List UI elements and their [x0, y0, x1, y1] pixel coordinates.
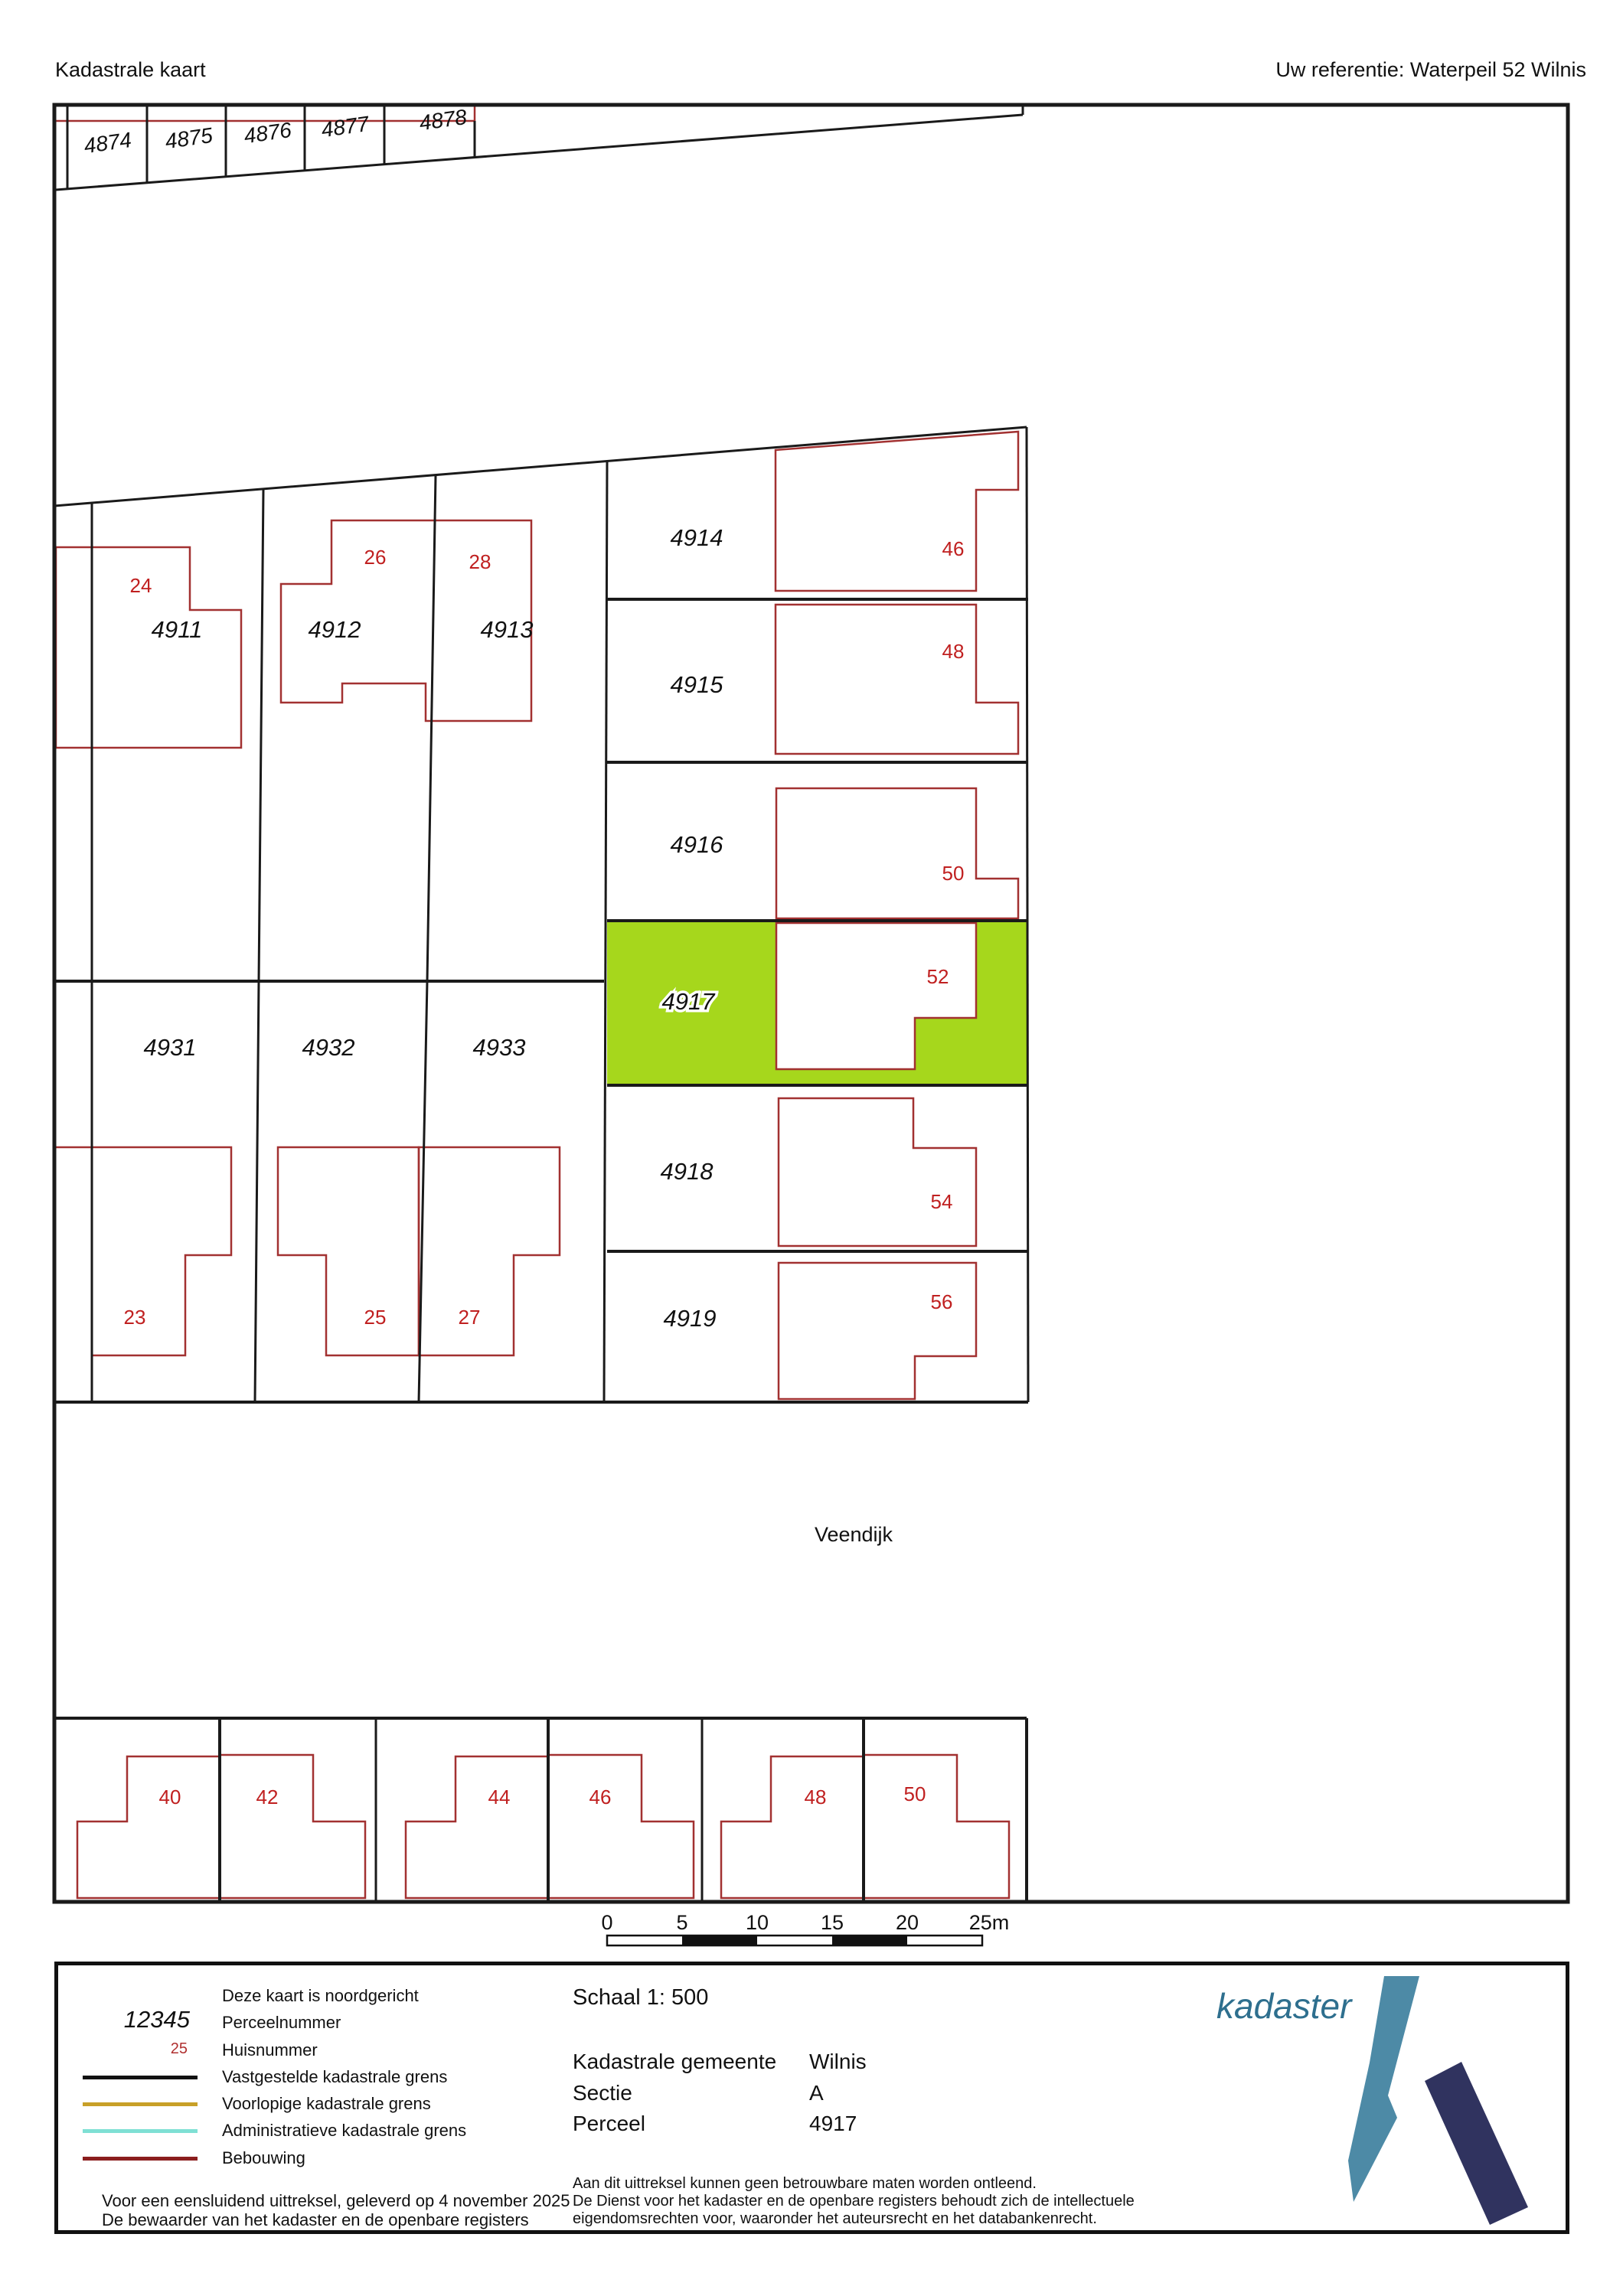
street-label: Veendijk [815, 1523, 893, 1546]
building-46 [776, 432, 1018, 591]
parcel-label: 4911 [152, 616, 203, 643]
kadaster-logo-text: kadaster [1216, 1986, 1353, 2026]
house-number: 44 [488, 1786, 511, 1808]
parcel-label: 4878 [418, 105, 469, 135]
building-40 [77, 1756, 220, 1898]
cadastral-extract-page: Kadastrale kaart Uw referentie: Waterpei… [0, 0, 1623, 2296]
parcel-number-legend-label: Perceelnummer [222, 2013, 341, 2033]
top-parcel-labels: 4874 4875 4876 4877 4878 [83, 105, 469, 158]
parcel-label: 4916 [671, 831, 724, 858]
provisional-boundary-label: Voorlopige kadastrale grens [222, 2094, 431, 2114]
building-50b [864, 1755, 1009, 1898]
house-number: 23 [124, 1306, 146, 1329]
house-number: 42 [256, 1786, 279, 1808]
scale-tick: 5 [676, 1911, 687, 1934]
building-54 [779, 1098, 976, 1246]
administrative-boundary-label: Administratieve kadastrale grens [222, 2121, 466, 2141]
parcel-number-sample: 12345 [104, 2006, 190, 2033]
scale-tick: 25m [969, 1911, 1010, 1934]
parcel-label: 4876 [243, 118, 293, 148]
building-legend-label: Bebouwing [222, 2148, 305, 2168]
house-number-sample: 25 [104, 2040, 188, 2058]
established-boundary-line-sample [83, 2076, 198, 2079]
parcel-label: 4915 [671, 671, 724, 698]
house-number: 46 [589, 1786, 612, 1808]
map-frame [54, 105, 1568, 1902]
house-number: 27 [459, 1306, 481, 1329]
parcel-label: 4914 [671, 524, 723, 551]
kadaster-logo-bar [1425, 2062, 1528, 2225]
scale-bar: 0 5 10 15 20 25m [601, 1911, 1009, 1945]
house-number: 28 [469, 550, 491, 573]
north-note: Deze kaart is noordgericht [222, 1986, 419, 2006]
house-number: 48 [942, 640, 965, 663]
parcel-label: 4875 [164, 123, 214, 153]
house-number: 54 [931, 1190, 953, 1213]
building-42 [220, 1755, 365, 1898]
parcel-boundaries [54, 105, 1028, 1902]
house-number: 25 [364, 1306, 387, 1329]
house-number: 50 [904, 1782, 926, 1805]
parcel-label: 4931 [144, 1034, 197, 1061]
section-label: Sectie [573, 2081, 632, 2105]
house-number: 26 [364, 546, 387, 569]
legend-box: Deze kaart is noordgericht 12345 Perceel… [54, 1962, 1569, 2234]
house-number: 24 [130, 574, 152, 597]
building-50 [776, 788, 1018, 918]
disclaimer-line: Aan dit uittreksel kunnen geen betrouwba… [573, 2175, 1037, 2193]
disclaimer-line: De Dienst voor het kadaster en de openba… [573, 2193, 1135, 2210]
scale-tick: 0 [601, 1911, 612, 1934]
disclaimer-line: eigendomsrechten voor, waaronder het aut… [573, 2210, 1097, 2228]
building-outlines [54, 105, 1018, 1898]
house-number: 40 [159, 1786, 181, 1808]
highlighted-parcel-label: 4917 [662, 988, 717, 1015]
building-48b [721, 1756, 864, 1898]
building-46b [548, 1755, 694, 1898]
kadaster-logo: kadaster [1192, 1975, 1552, 2231]
building-27 [419, 1147, 560, 1355]
scale-tick: 10 [746, 1911, 769, 1934]
house-number-legend-label: Huisnummer [222, 2040, 318, 2060]
scale-tick: 15 [821, 1911, 844, 1934]
scale-text: Schaal 1: 500 [573, 1985, 708, 2011]
house-number: 56 [931, 1290, 953, 1313]
cadastral-map: 4874 4875 4876 4877 4878 4911 4912 4913 … [0, 0, 1623, 2296]
issuance-note: Voor een eensluidend uittreksel, gelever… [102, 2191, 570, 2210]
parcel-label: 4877 [320, 112, 371, 142]
parcel-label: 4912 [309, 616, 361, 643]
building-56 [779, 1263, 976, 1399]
parcel-label: 4913 [481, 616, 534, 643]
kadaster-logo-blade [1348, 1976, 1419, 2202]
municipality-label: Kadastrale gemeente [573, 2050, 776, 2074]
building-44 [406, 1756, 548, 1898]
parcel-label: 4933 [473, 1034, 526, 1061]
administrative-boundary-line-sample [83, 2129, 198, 2133]
provisional-boundary-line-sample [83, 2102, 198, 2106]
section-value: A [809, 2081, 824, 2105]
parcel-label-row: Perceel [573, 2112, 645, 2136]
parcel-label: 4874 [83, 128, 133, 158]
building-48 [776, 605, 1018, 754]
building-line-sample [83, 2157, 198, 2161]
house-number: 48 [805, 1786, 827, 1808]
parcel-value: 4917 [809, 2112, 857, 2136]
parcel-row-lines [54, 599, 1028, 1902]
house-number-labels: 24 26 28 46 48 50 52 54 56 23 25 27 40 4… [124, 537, 965, 1808]
parcel-label: 4918 [661, 1158, 714, 1185]
municipality-value: Wilnis [809, 2050, 867, 2074]
house-number: 50 [942, 862, 965, 885]
parcel-label: 4919 [664, 1305, 717, 1332]
registrar-note: De bewaarder van het kadaster en de open… [102, 2210, 529, 2229]
house-number: 46 [942, 537, 965, 560]
building-25 [278, 1147, 419, 1355]
established-boundary-label: Vastgestelde kadastrale grens [222, 2067, 447, 2087]
parcel-label: 4932 [302, 1034, 355, 1061]
house-number: 52 [927, 965, 949, 988]
scale-tick: 20 [896, 1911, 919, 1934]
